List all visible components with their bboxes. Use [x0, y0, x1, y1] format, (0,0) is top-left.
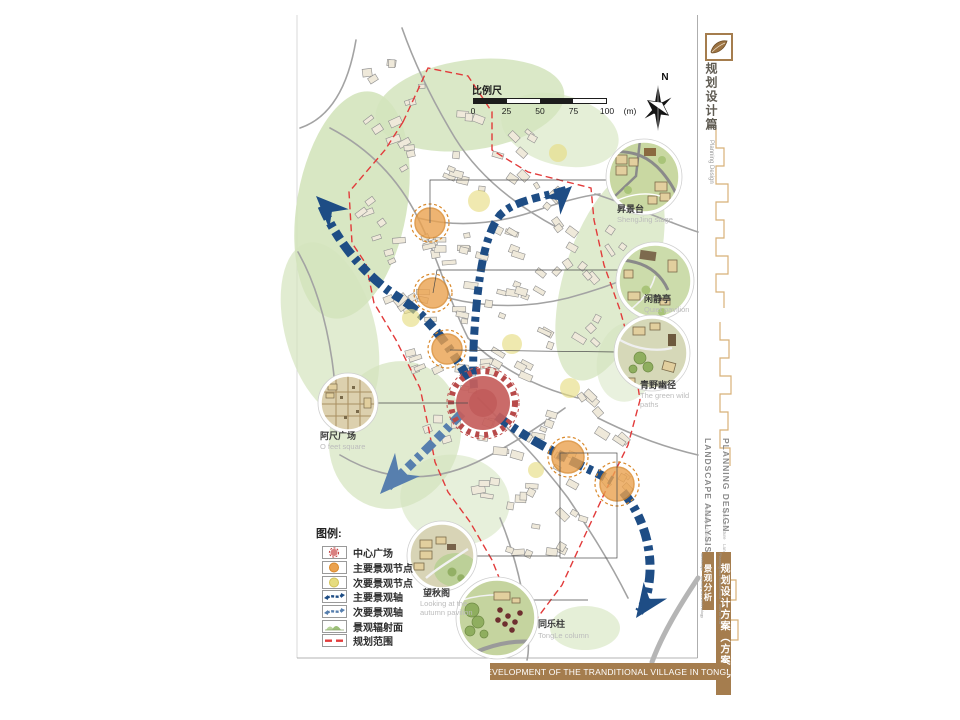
callout-sublabel-green-wild-paths: The green wild paths — [640, 392, 692, 409]
secondary-axis-icon — [322, 605, 347, 618]
analysis-subtitle-line: Space structure — [722, 508, 727, 540]
section-title-zh: 规划设计篇 — [704, 62, 718, 132]
main-node — [428, 330, 466, 368]
analysis-name-en-line: Industry and technology — [700, 576, 705, 618]
planning-scope-icon — [322, 634, 347, 647]
callout-label-shengjing: 昇景台 — [617, 205, 644, 215]
scale-bar-strip — [473, 98, 607, 104]
title-banner: DEVELOPMENT OF THE TRANDITIONAL VILLAGE … — [490, 663, 727, 680]
leaf-logo-icon — [707, 35, 731, 59]
callout-label-tongle-column: 同乐柱 — [538, 620, 565, 630]
analysis-name-en-line: Planning and architectural — [718, 553, 723, 599]
section-logo — [705, 33, 733, 61]
callout-sublabel-tongle-column: TongLe column — [538, 632, 589, 641]
planning-sheet: 比例尺 0 25 50 75 100 (m) N — [0, 0, 960, 720]
scale-tick: 75 — [569, 106, 578, 116]
scale-bar: 比例尺 0 25 50 75 100 (m) — [470, 82, 655, 118]
analysis-subtitle-line: Municipal facilities — [704, 508, 709, 544]
scale-unit: (m) — [624, 106, 637, 116]
scale-bar-ticks: 0 25 50 75 100 (m) — [470, 106, 655, 118]
callout-label-quiet-pavilion: 闲静亭 — [644, 295, 671, 305]
callout-label-o-feet-square: 阿尺广场 — [320, 432, 356, 442]
scale-tick: 25 — [502, 106, 511, 116]
section-title-en: Planning Design — [708, 140, 714, 184]
scale-tick: 0 — [471, 106, 476, 116]
legend: 图例: 中心广场 主要景观节点 次要景观节点 主要景观轴 — [316, 525, 446, 650]
scale-tick: 50 — [535, 106, 544, 116]
center-plaza-icon — [322, 546, 347, 559]
section-title-block: 规划设计篇 Planning Design — [702, 62, 720, 192]
main-axis-icon — [322, 590, 347, 603]
main-node — [548, 437, 588, 477]
main-node-icon — [322, 561, 347, 574]
callout-sublabel-quiet-pavilion: Quiet pavilion — [644, 306, 689, 315]
secondary-node-icon — [322, 576, 347, 589]
scale-bar-title: 比例尺 — [472, 82, 502, 97]
callout-label-green-wild-paths: 青野幽径 — [640, 381, 676, 391]
north-indicator: N — [638, 72, 678, 136]
axis-arrowhead-s — [624, 582, 667, 626]
legend-title: 图例: — [316, 525, 446, 541]
callout-sublabel-o-feet-square: O feet square — [320, 443, 365, 452]
north-label: N — [652, 72, 678, 83]
radiation-surface-icon — [322, 620, 347, 633]
north-compass-icon — [638, 83, 678, 133]
inset-tongle-column — [456, 577, 540, 661]
analysis-name-en-block: Planning and architectural Interior and … — [693, 553, 729, 643]
callout-sublabel-shengjing: ShengJing stage — [617, 216, 673, 225]
scale-tick: 100 — [600, 106, 614, 116]
